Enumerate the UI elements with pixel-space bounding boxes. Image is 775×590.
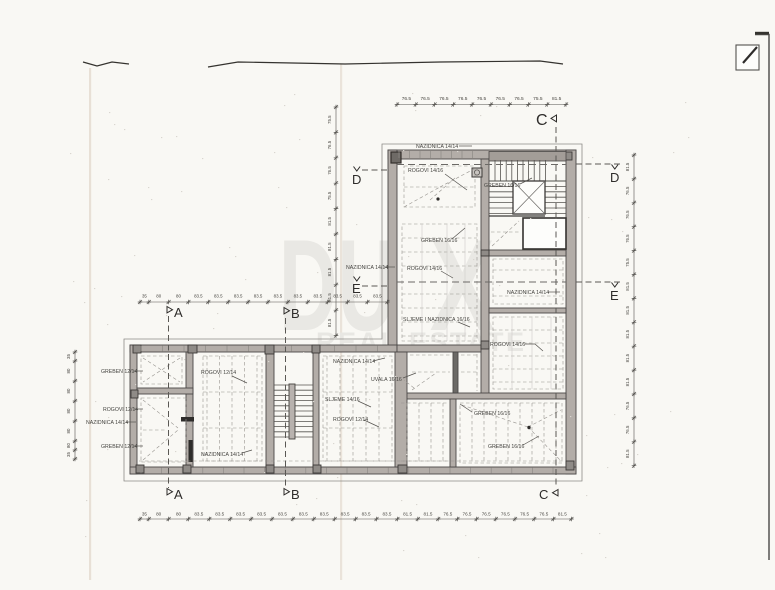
- svg-text:C: C: [539, 487, 548, 502]
- svg-text:76.5: 76.5: [402, 96, 412, 102]
- svg-text:81.5: 81.5: [327, 293, 332, 302]
- svg-text:83.5: 83.5: [274, 294, 283, 299]
- svg-text:83.5: 83.5: [362, 512, 371, 517]
- svg-text:76.5: 76.5: [625, 186, 630, 195]
- svg-text:ROGOVI 14/16: ROGOVI 14/16: [490, 342, 525, 348]
- svg-text:SLJEME I NAZIDNICA 16/16: SLJEME I NAZIDNICA 16/16: [403, 317, 470, 323]
- svg-text:ROGOVI 14/16: ROGOVI 14/16: [407, 266, 442, 272]
- svg-text:35: 35: [142, 294, 147, 299]
- svg-text:81.5: 81.5: [625, 162, 630, 171]
- svg-text:81.5: 81.5: [552, 96, 562, 102]
- svg-text:UVALA 16/16: UVALA 16/16: [371, 377, 402, 383]
- svg-text:80: 80: [66, 408, 71, 413]
- svg-text:76.5: 76.5: [482, 512, 491, 517]
- svg-text:76.5: 76.5: [514, 96, 524, 102]
- svg-text:76.5: 76.5: [439, 96, 449, 102]
- svg-text:83.5: 83.5: [382, 512, 391, 517]
- svg-text:76.5: 76.5: [496, 96, 506, 102]
- svg-text:83.5: 83.5: [373, 294, 382, 299]
- svg-text:80: 80: [176, 512, 182, 517]
- svg-text:81.5: 81.5: [403, 512, 412, 517]
- svg-text:80: 80: [156, 512, 162, 517]
- svg-text:76.5: 76.5: [625, 401, 630, 410]
- svg-text:ROGOVI 12/14: ROGOVI 12/14: [333, 417, 368, 423]
- svg-text:C: C: [536, 112, 548, 129]
- svg-text:83.5: 83.5: [194, 294, 203, 299]
- svg-text:SLJEME 14/16: SLJEME 14/16: [325, 397, 360, 403]
- svg-text:76.5: 76.5: [539, 512, 548, 517]
- svg-text:NAZIDNICA 14/14: NAZIDNICA 14/14: [507, 290, 549, 296]
- svg-text:81.5: 81.5: [327, 216, 332, 225]
- svg-text:83.5: 83.5: [194, 512, 203, 517]
- svg-text:75.5: 75.5: [625, 258, 630, 267]
- svg-text:76.5: 76.5: [477, 96, 487, 102]
- svg-text:83.5: 83.5: [278, 512, 287, 517]
- svg-text:83.5: 83.5: [214, 294, 223, 299]
- svg-text:GREBEN 16/16: GREBEN 16/16: [488, 444, 524, 450]
- svg-text:NAZIDNICA 14/14: NAZIDNICA 14/14: [416, 144, 458, 150]
- svg-text:NAZIDNICA 14/14: NAZIDNICA 14/14: [346, 265, 388, 271]
- svg-text:83.5: 83.5: [299, 512, 308, 517]
- svg-text:B: B: [291, 306, 300, 321]
- svg-text:GREBEN 12/14: GREBEN 12/14: [101, 444, 137, 450]
- svg-text:83.5: 83.5: [294, 294, 303, 299]
- svg-text:76.5: 76.5: [520, 512, 529, 517]
- svg-text:GREBEN 12/14: GREBEN 12/14: [101, 369, 137, 375]
- svg-text:D: D: [610, 170, 619, 185]
- svg-text:81.5: 81.5: [625, 377, 630, 386]
- svg-text:A: A: [174, 487, 183, 502]
- svg-text:83.5: 83.5: [254, 294, 263, 299]
- svg-text:83.5: 83.5: [320, 512, 329, 517]
- svg-text:80: 80: [66, 388, 71, 393]
- svg-text:81.5: 81.5: [625, 353, 630, 362]
- svg-text:GREBEN 16/16: GREBEN 16/16: [474, 411, 510, 417]
- svg-text:76.5: 76.5: [327, 166, 332, 175]
- svg-text:80: 80: [156, 294, 161, 299]
- svg-text:83.5: 83.5: [257, 512, 266, 517]
- svg-text:83.5: 83.5: [236, 512, 245, 517]
- svg-text:75.5: 75.5: [327, 115, 332, 124]
- svg-text:80: 80: [176, 294, 181, 299]
- svg-text:81.5: 81.5: [327, 318, 332, 327]
- svg-text:83.5: 83.5: [333, 294, 342, 299]
- svg-text:76.5: 76.5: [501, 512, 510, 517]
- svg-text:NAZIDNICA 14/14: NAZIDNICA 14/14: [201, 452, 243, 458]
- svg-text:35: 35: [66, 354, 71, 359]
- svg-text:80: 80: [66, 368, 71, 373]
- svg-text:76.5: 76.5: [625, 425, 630, 434]
- svg-text:76.5: 76.5: [625, 210, 630, 219]
- svg-text:75.5: 75.5: [533, 96, 543, 102]
- svg-text:83.5: 83.5: [313, 294, 322, 299]
- svg-text:81.5: 81.5: [327, 242, 332, 251]
- svg-text:76.5: 76.5: [443, 512, 452, 517]
- svg-text:NAZIDNICA 14/14: NAZIDNICA 14/14: [86, 420, 128, 426]
- svg-text:76.5: 76.5: [625, 234, 630, 243]
- svg-text:76.5: 76.5: [420, 96, 430, 102]
- svg-text:35: 35: [66, 452, 71, 457]
- svg-text:83.5: 83.5: [341, 512, 350, 517]
- svg-text:NAZIDNICA 14/14: NAZIDNICA 14/14: [333, 359, 375, 365]
- svg-text:81.5: 81.5: [625, 282, 630, 291]
- svg-text:ROGOVI 14/16: ROGOVI 14/16: [408, 168, 443, 174]
- svg-text:E: E: [610, 288, 619, 303]
- svg-text:81.5: 81.5: [558, 512, 567, 517]
- svg-text:35: 35: [142, 512, 148, 517]
- svg-text:76.5: 76.5: [327, 140, 332, 149]
- svg-text:ROGOVI 12/14: ROGOVI 12/14: [201, 370, 236, 376]
- svg-text:75.5: 75.5: [327, 191, 332, 200]
- svg-text:76.5: 76.5: [463, 512, 472, 517]
- svg-text:80: 80: [66, 443, 71, 448]
- svg-text:81.5: 81.5: [625, 306, 630, 315]
- svg-text:A: A: [174, 305, 183, 320]
- svg-text:B: B: [291, 487, 300, 502]
- svg-text:81.5: 81.5: [424, 512, 433, 517]
- svg-text:83.5: 83.5: [215, 512, 224, 517]
- svg-text:83.5: 83.5: [234, 294, 243, 299]
- svg-text:81.5: 81.5: [625, 449, 630, 458]
- svg-text:81.5: 81.5: [625, 329, 630, 338]
- svg-text:GREBEN 16/16: GREBEN 16/16: [484, 183, 520, 189]
- svg-text:ROGOVI 12/14: ROGOVI 12/14: [103, 407, 138, 413]
- svg-text:80: 80: [66, 428, 71, 433]
- svg-text:D: D: [352, 172, 361, 187]
- svg-text:81.5: 81.5: [327, 267, 332, 276]
- svg-text:76.5: 76.5: [458, 96, 468, 102]
- svg-text:83.5: 83.5: [353, 294, 362, 299]
